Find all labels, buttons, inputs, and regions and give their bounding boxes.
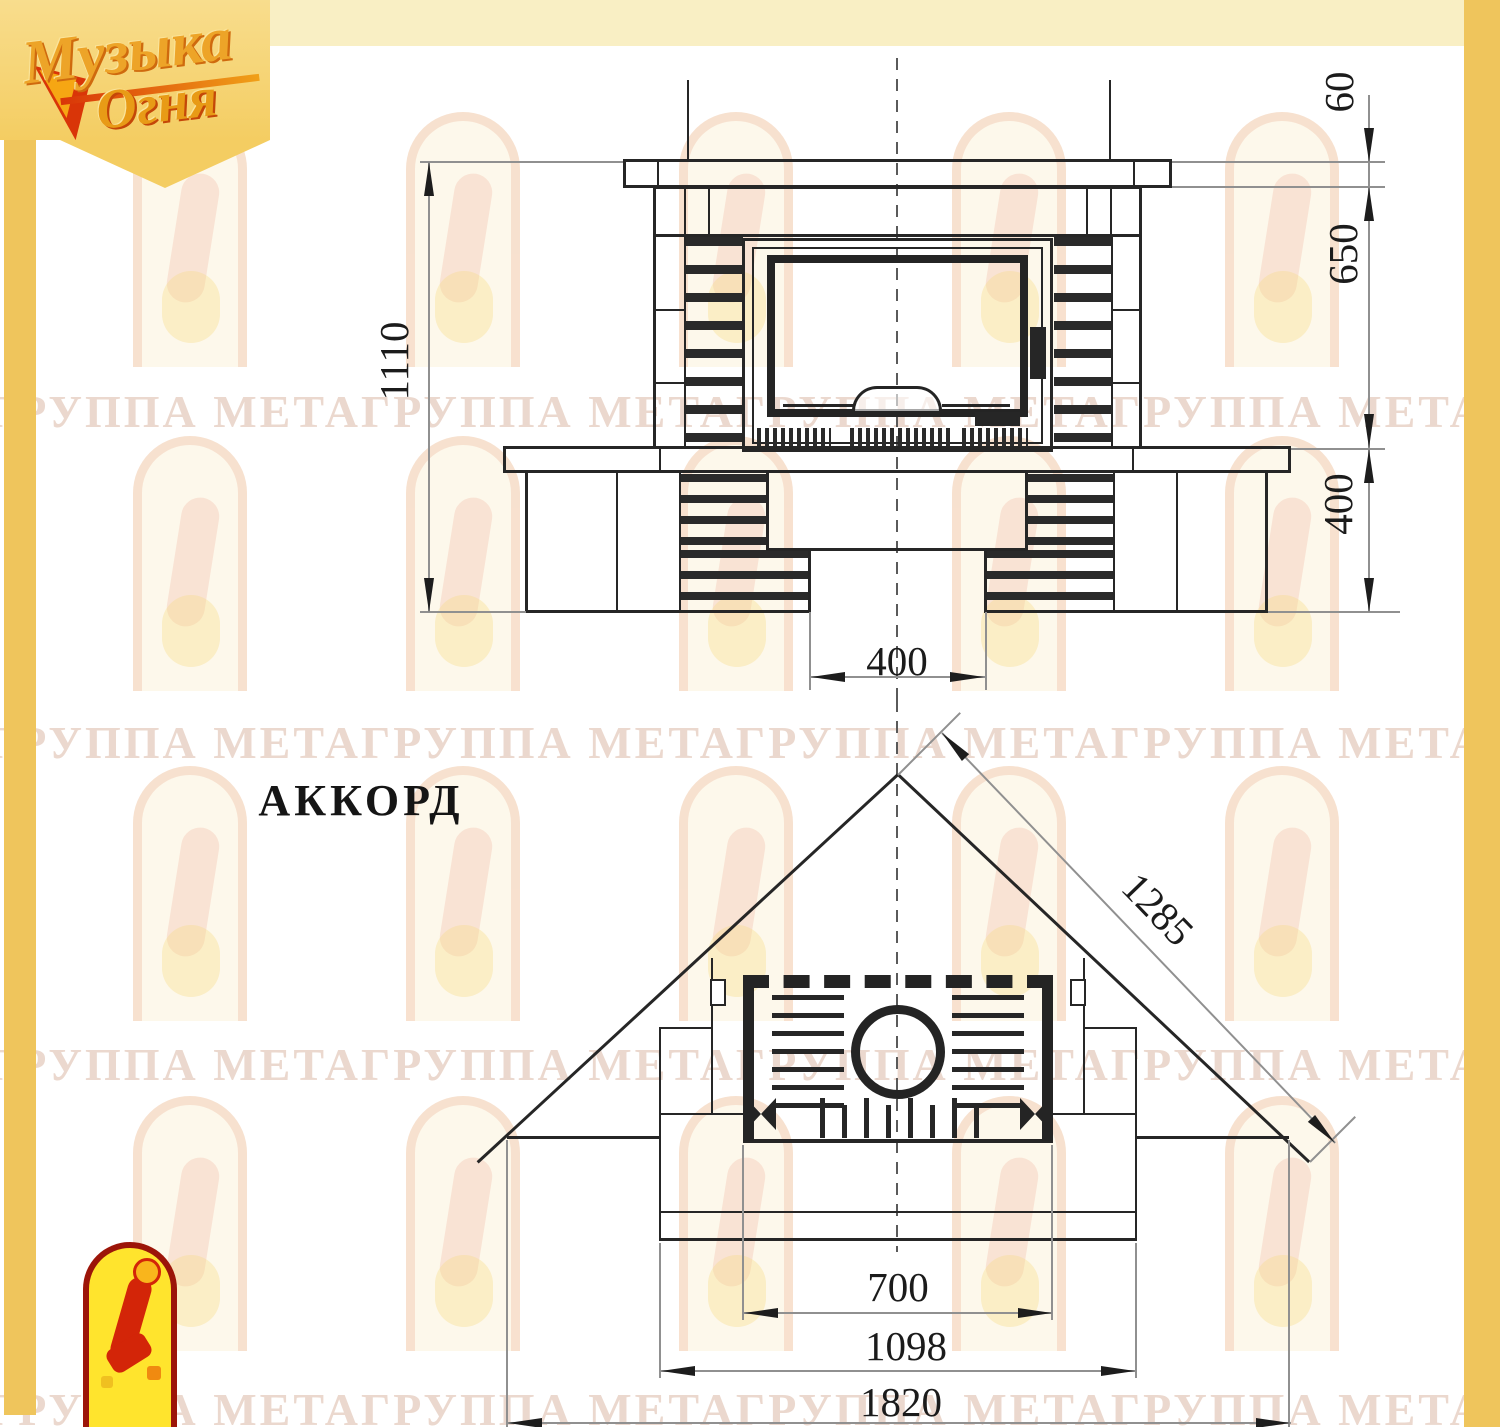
- ext-line: [1288, 1140, 1290, 1427]
- firebox-fin: [952, 1049, 1024, 1054]
- base-center-block: [766, 473, 1028, 551]
- base-stripes-upper-left: [681, 474, 767, 550]
- pilaster-joint: [1111, 382, 1142, 384]
- shelf-joint: [1133, 159, 1135, 188]
- damper-symbol: [761, 1098, 776, 1130]
- pilaster-joint: [653, 382, 684, 384]
- dim-line-right-chain: [1368, 95, 1370, 612]
- grate-bar: [820, 1098, 825, 1138]
- mantel-shelf: [623, 159, 1172, 188]
- arrow-down-icon: [1364, 128, 1374, 162]
- arrow-left-icon: [744, 1308, 778, 1318]
- base-bottom-right: [984, 610, 1268, 613]
- ext-line: [420, 611, 526, 613]
- pilaster-joint: [1111, 309, 1142, 311]
- ext-line: [506, 1140, 508, 1427]
- plan-front-face-left: [507, 1136, 660, 1139]
- ext-line: [742, 1145, 744, 1320]
- flue-edge-right: [1109, 80, 1111, 160]
- arrow-up-icon: [424, 162, 434, 196]
- dim-label-shelf-thickness: 60: [1315, 52, 1363, 132]
- fire-figure-logo: [83, 1242, 177, 1427]
- dim-label-total-height: 1110: [370, 301, 418, 421]
- body-edge-left: [653, 237, 656, 448]
- plan-side-edge-left: [659, 1027, 661, 1240]
- firebox-fin: [772, 995, 844, 1000]
- model-title: АККОРД: [236, 775, 486, 826]
- watermark-text-row: ГРУППА МЕТАГРУППА МЕТАГРУППА МЕТАГРУППА …: [0, 716, 1500, 769]
- plan-front-face-right: [1136, 1136, 1289, 1139]
- dim-label-diagonal-width: 1285: [1085, 835, 1231, 983]
- dim-line-1098: [660, 1370, 1136, 1372]
- plan-step-ledge: [1083, 1027, 1137, 1029]
- arrow-left-icon: [508, 1418, 542, 1427]
- crown-band: [653, 186, 1142, 237]
- base-joint: [1113, 473, 1115, 612]
- crown-joint: [708, 186, 710, 237]
- arrow-right-icon: [1101, 1366, 1135, 1376]
- recess-wall-right: [984, 550, 987, 612]
- dim-label-base-height: 400: [1314, 454, 1362, 554]
- watermark-arch: [406, 1096, 520, 1351]
- firebox-fin: [952, 1013, 1024, 1018]
- firebox-fin: [952, 1067, 1024, 1072]
- watermark-arch: [406, 112, 520, 367]
- firebox-fin: [772, 1103, 844, 1108]
- base-joint: [1176, 473, 1178, 612]
- base-stripes-lower-right: [986, 550, 1113, 611]
- firebox-fin: [952, 995, 1024, 1000]
- watermark-arch: [1225, 766, 1339, 1021]
- dim-line-1110: [428, 162, 430, 612]
- base-bottom-left: [525, 610, 811, 613]
- arrow-right-icon: [1256, 1418, 1290, 1427]
- firebox-fin: [772, 1013, 844, 1018]
- fire-figure-head: [133, 1258, 161, 1286]
- fire-figure-dot: [101, 1376, 113, 1388]
- ext-line: [1268, 611, 1400, 613]
- base-stripes-lower-left: [681, 550, 809, 611]
- dim-line-700: [743, 1312, 1053, 1314]
- base-edge-left: [525, 473, 528, 612]
- dim-label-body-height: 650: [1319, 204, 1367, 304]
- firebox-fin: [772, 1049, 844, 1054]
- arrow-down-icon: [1364, 414, 1374, 448]
- pilaster-joint: [653, 309, 684, 311]
- vent-grill: [962, 428, 1028, 448]
- firebox-log-hump: [852, 386, 942, 411]
- crown-joint: [1086, 186, 1088, 237]
- shelf-joint: [657, 159, 659, 188]
- body-edge-right: [1139, 237, 1142, 448]
- ext-line: [1051, 1145, 1053, 1320]
- firebox-fin: [772, 1085, 844, 1090]
- plan-bench-line: [659, 1113, 745, 1115]
- plan-step-ledge: [659, 1027, 713, 1029]
- damper-symbol: [1035, 1098, 1050, 1130]
- plan-side-edge-right: [1135, 1027, 1137, 1240]
- brick-stripes-right: [1054, 237, 1111, 448]
- ext-line: [1135, 1243, 1137, 1378]
- firebox-fin: [952, 1031, 1024, 1036]
- ext-line: [420, 161, 623, 163]
- arrow-right-icon: [950, 672, 984, 682]
- door-sill-line: [942, 404, 1010, 407]
- grate-bar: [952, 1098, 957, 1138]
- watermark-arch: [133, 766, 247, 1021]
- left-gold-strip: [4, 140, 36, 1415]
- damper-symbol: [1020, 1098, 1035, 1130]
- flue-edge-left: [687, 80, 689, 160]
- grate-bar: [974, 1105, 979, 1138]
- logo-background-point: [60, 140, 270, 188]
- recess-wall-left: [808, 550, 811, 612]
- base-stripes-upper-right: [1028, 474, 1113, 550]
- arrow-up-icon: [1364, 449, 1374, 483]
- firebox-fin: [772, 1067, 844, 1072]
- dim-label-front-width: 1098: [846, 1322, 966, 1370]
- firebox-fin: [952, 1103, 1024, 1108]
- brand-logo: Музыка Огня: [0, 0, 270, 168]
- grate-bar: [908, 1098, 913, 1138]
- hearth-joint: [659, 446, 661, 473]
- vent-grill: [850, 428, 950, 448]
- dim-label-overall-width: 1820: [831, 1378, 971, 1426]
- arrow-down-icon: [424, 578, 434, 612]
- flue-outlet-circle: [851, 1005, 945, 1099]
- crown-joint: [1110, 186, 1112, 237]
- base-edge-right: [1265, 473, 1268, 612]
- fire-figure-dot: [147, 1366, 161, 1380]
- pilaster-inner-edge: [1111, 237, 1113, 448]
- crown-joint: [684, 186, 686, 237]
- plan-front-block-bottom: [659, 1238, 1137, 1241]
- firebox-fin: [952, 1085, 1024, 1090]
- ext-line: [985, 612, 987, 690]
- ext-line: [659, 1243, 661, 1378]
- hearth-shelf: [503, 446, 1291, 473]
- hearth-joint: [1132, 446, 1134, 473]
- dim-label-opening-width: 700: [848, 1263, 948, 1311]
- grate-bar: [930, 1105, 935, 1138]
- page: ГРУППА МЕТАГРУППА МЕТАГРУППА МЕТАГРУППА …: [0, 0, 1500, 1427]
- plan-notch: [710, 979, 726, 1006]
- arrow-left-icon: [811, 672, 845, 682]
- arrow-left-icon: [661, 1366, 695, 1376]
- door-sill-line: [783, 404, 853, 407]
- vent-grill: [757, 428, 831, 448]
- damper-symbol: [746, 1098, 761, 1130]
- right-gold-strip: [1464, 0, 1500, 1427]
- watermark-arch: [406, 436, 520, 691]
- brick-stripes-left: [686, 237, 743, 448]
- plan-bench-line: [1051, 1113, 1137, 1115]
- door-latch-block: [975, 412, 1020, 426]
- arrow-down-icon: [1364, 578, 1374, 612]
- plan-notch: [1070, 979, 1086, 1006]
- arrow-right-icon: [1018, 1308, 1052, 1318]
- plan-front-block-line: [659, 1211, 1137, 1213]
- ext-line: [1172, 161, 1385, 163]
- door-handle: [1030, 327, 1046, 379]
- watermark-arch: [133, 436, 247, 691]
- ext-line: [1172, 186, 1385, 188]
- base-joint: [616, 473, 618, 612]
- grate-bar: [864, 1098, 869, 1138]
- firebox-fin: [772, 1031, 844, 1036]
- dim-label-recess-width: 400: [847, 637, 947, 685]
- grate-bar: [842, 1105, 847, 1138]
- grate-bar: [886, 1105, 891, 1138]
